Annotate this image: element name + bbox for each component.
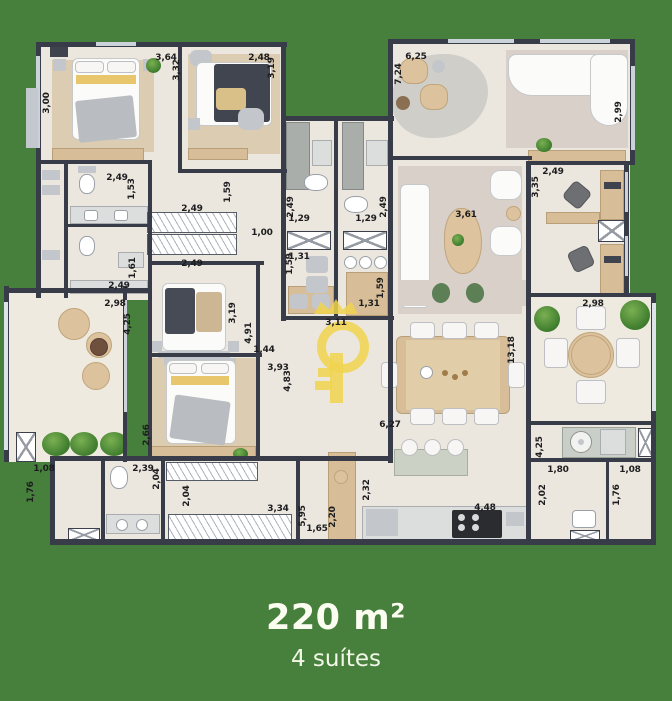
dimension-label: 2,39 bbox=[132, 464, 153, 474]
dimension-label: 1,29 bbox=[355, 214, 376, 224]
dimension-labels: 3,003,643,322,483,196,257,242,992,493,35… bbox=[0, 0, 672, 560]
dimension-label: 1,31 bbox=[358, 299, 379, 309]
dimension-label: 2,32 bbox=[362, 479, 372, 500]
dimension-label: 1,08 bbox=[33, 464, 54, 474]
dimension-label: 3,00 bbox=[42, 92, 52, 113]
dimension-label: 1,59 bbox=[376, 277, 386, 298]
dimension-label: 1,76 bbox=[26, 481, 36, 502]
dimension-label: 2,49 bbox=[181, 204, 202, 214]
dimension-label: 3,19 bbox=[267, 57, 277, 78]
dimension-label: 2,04 bbox=[182, 485, 192, 506]
dimension-label: 1,29 bbox=[288, 214, 309, 224]
dimension-label: 1,80 bbox=[547, 465, 568, 475]
dimension-label: 2,49 bbox=[542, 167, 563, 177]
dimension-label: 1,59 bbox=[223, 181, 233, 202]
dimension-label: 2,66 bbox=[142, 424, 152, 445]
area-value: 220 m² bbox=[0, 598, 672, 638]
dimension-label: 2,49 bbox=[379, 196, 389, 217]
dimension-label: 3,11 bbox=[325, 318, 346, 328]
dimension-label: 2,98 bbox=[582, 299, 603, 309]
dimension-label: 1,65 bbox=[306, 524, 327, 534]
dimension-label: 4,91 bbox=[244, 322, 254, 343]
dimension-label: 3,19 bbox=[228, 302, 238, 323]
dimension-label: 3,61 bbox=[455, 210, 476, 220]
dimension-label: 1,59 bbox=[285, 253, 295, 274]
dimension-label: 4,48 bbox=[474, 503, 495, 513]
dimension-label: 2,04 bbox=[152, 468, 162, 489]
dimension-label: 2,99 bbox=[614, 101, 624, 122]
dimension-label: 4,83 bbox=[283, 370, 293, 391]
dimension-label: 2,49 bbox=[108, 281, 129, 291]
dimension-label: 1,08 bbox=[619, 465, 640, 475]
dimension-label: 3,34 bbox=[267, 504, 288, 514]
dimension-label: 1,76 bbox=[612, 484, 622, 505]
dimension-label: 6,25 bbox=[405, 52, 426, 62]
dimension-label: 1,61 bbox=[128, 257, 138, 278]
dimension-label: 6,27 bbox=[379, 420, 400, 430]
dimension-label: 4,25 bbox=[123, 313, 133, 334]
dimension-label: 2,20 bbox=[328, 506, 338, 527]
dimension-label: 2,49 bbox=[181, 259, 202, 269]
suites-value: 4 suítes bbox=[0, 646, 672, 672]
dimension-label: 2,98 bbox=[104, 299, 125, 309]
dimension-label: 1,53 bbox=[127, 178, 137, 199]
dimension-label: 1,00 bbox=[251, 228, 272, 238]
floorplan-card: 3,003,643,322,483,196,257,242,992,493,35… bbox=[0, 0, 672, 701]
dimension-label: 3,32 bbox=[172, 59, 182, 80]
dimension-label: 2,49 bbox=[106, 173, 127, 183]
dimension-label: 1,44 bbox=[253, 345, 274, 355]
dimension-label: 4,25 bbox=[535, 436, 545, 457]
dimension-label: 7,24 bbox=[394, 63, 404, 84]
dimension-label: 2,02 bbox=[538, 484, 548, 505]
dimension-label: 3,35 bbox=[531, 176, 541, 197]
floor-plan: 3,003,643,322,483,196,257,242,992,493,35… bbox=[0, 0, 672, 560]
dimension-label: 13,18 bbox=[507, 336, 517, 363]
